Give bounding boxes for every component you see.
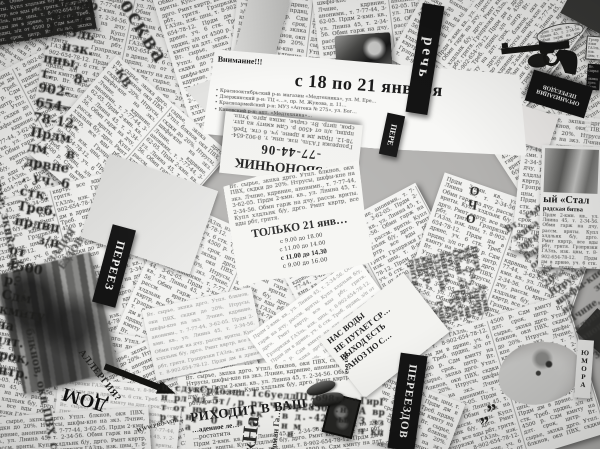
voz-ocha-text: воз оча <box>342 353 350 374</box>
bold-illegible-text: Грзпрвзки ГАЗль, нзк. цны, т. 8-902-654-… <box>366 398 385 447</box>
article-photo <box>544 148 600 194</box>
na-vertical-headline: «На <box>236 415 265 449</box>
small-label: Грзпрвзки ГАЗль, нзк. цны, т. 8-902-654-… <box>585 35 600 60</box>
bold-illegible-text: Грзпрвзки ГАЗль, нзк. цны, т. 8-902-654-… <box>50 0 102 30</box>
rech-banner-text: речь <box>413 36 437 81</box>
newsprint-text: Прдм 2-кмн. кв., ул. Лнина 45, т. 2-34-5… <box>538 212 599 269</box>
pere-chip-text: ПЕРЕ <box>385 123 398 146</box>
newspaper-collage-photo: Прдм 2-кмн. кв., ул. Лнина 45, т. 2-34-5… <box>0 0 600 449</box>
label-text: Грзпрвзки ГАЗль, нзк. цны, т. 8-902-654-… <box>586 37 600 60</box>
yumora-text: ЮМОРА <box>579 349 590 389</box>
pereezdov-banner-text: ПЕРЕЕЗДОВ <box>396 364 418 440</box>
stalingrad-article-scrap: ый «Стал радская битва Прдм 2-кмн. кв., … <box>538 145 600 269</box>
